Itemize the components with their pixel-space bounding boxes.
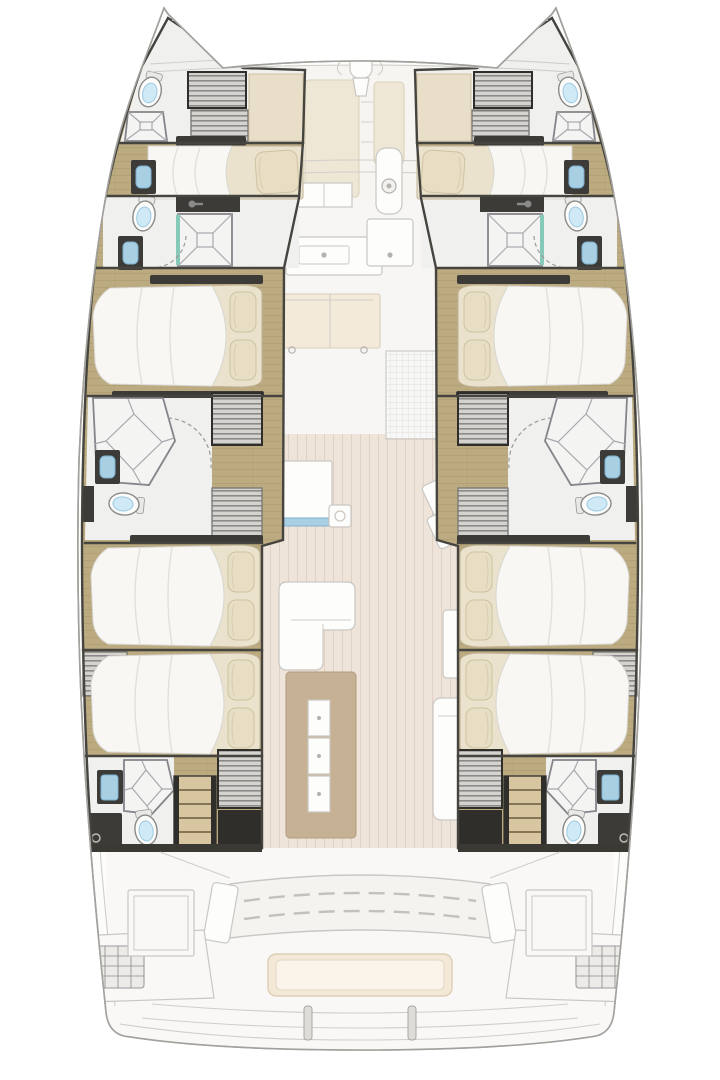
- island-unit: [282, 461, 332, 525]
- floor-hatch: [329, 505, 351, 527]
- transom-post: [304, 1006, 312, 1040]
- floorplan-image: [0, 0, 720, 1080]
- floorplan-svg: [0, 0, 720, 1080]
- curved-bench: [230, 875, 490, 938]
- deck-hatch: [128, 890, 194, 956]
- island-glass-front: [284, 518, 330, 526]
- sideboard-cabinet: [276, 294, 380, 348]
- anchor-fitting: [350, 36, 372, 78]
- deck-hatch: [526, 890, 592, 956]
- transom-post: [408, 1006, 416, 1040]
- tiled-mat: [386, 351, 442, 439]
- sun-pad: [305, 80, 359, 197]
- service-counter: [367, 219, 413, 266]
